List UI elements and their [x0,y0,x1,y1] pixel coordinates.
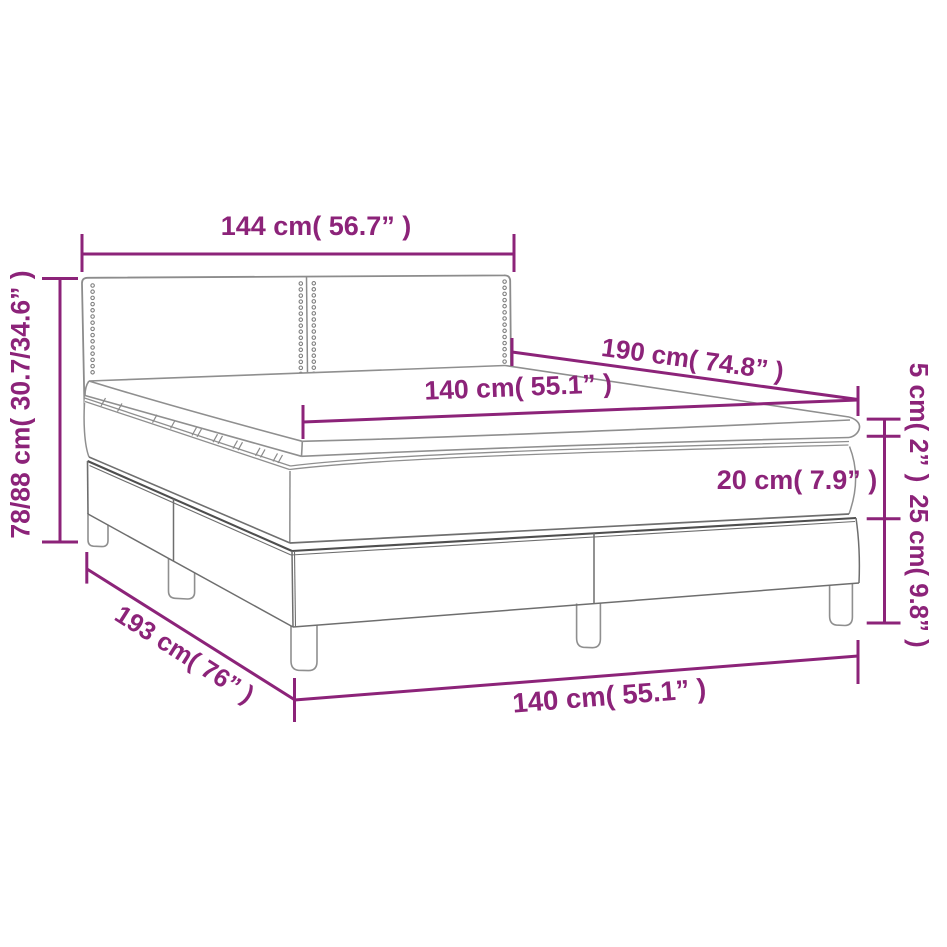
svg-text:25 cm( 9.8” ): 25 cm( 9.8” ) [904,494,932,647]
svg-text:20 cm( 7.9” ): 20 cm( 7.9” ) [717,465,878,495]
svg-text:144 cm( 56.7” ): 144 cm( 56.7” ) [221,211,412,241]
svg-text:78/88 cm( 30.7/34.6” ): 78/88 cm( 30.7/34.6” ) [6,270,36,538]
svg-text:5 cm( 2” ): 5 cm( 2” ) [904,363,934,483]
